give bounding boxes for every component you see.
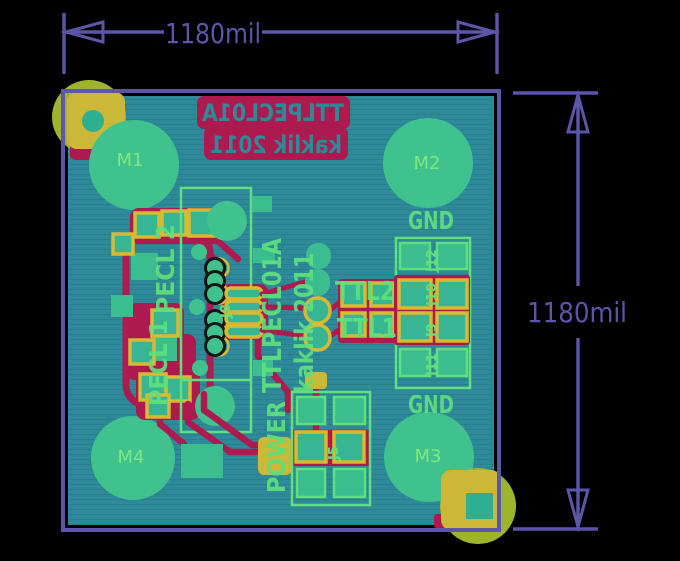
silkscreen-title-block: TTLPECL01A kaklik 2011 [197,96,350,160]
j-connector-block: J12 J10 J9 J11 [394,238,470,388]
silk-title-line1: TTLPECL01A [202,99,344,127]
power-label: POWER [262,401,291,493]
j9-label: J9 [425,323,440,338]
corner-pad-bottom-right [434,468,516,544]
gnd-top-label: GND [408,206,454,235]
right-dimension-value: 1180mil [527,296,627,329]
corner-drill-br [466,493,493,519]
ttl2-label: TTL2 [335,277,395,307]
part-title-vertical: TTLPECL01A [258,238,288,393]
author-year-vertical: kaklik 2011 [290,253,320,393]
j5-label: J5 [327,446,342,461]
gnd-bottom-label: GND [408,390,454,419]
j8-label: J8 [219,304,234,319]
corner-drill [82,110,104,132]
top-dimension: 1180mil [64,13,497,74]
m3-label: M3 [415,446,442,467]
top-dimension-value: 1180mil [165,17,261,50]
j12-label: J12 [425,249,440,273]
pcb-render: TTLPECL01A kaklik 2011 M1 M2 M3 M4 [0,0,680,561]
copper-pour-pad [181,444,223,478]
pecl2-label: PECL 2 [151,224,180,314]
m4-label: M4 [118,447,145,468]
silk-title-line2: kaklik 2011 [210,131,342,159]
j10-label: J10 [425,283,440,307]
pcb-viewer-canvas: TTLPECL01A kaklik 2011 M1 M2 M3 M4 [0,0,680,561]
m2-label: M2 [414,153,441,174]
dip-via-top [207,201,247,241]
board: TTLPECL01A kaklik 2011 M1 M2 M3 M4 [52,80,516,544]
m1-label: M1 [117,150,144,171]
pecl1-label: PECL 1 [144,320,173,406]
j11-label: J11 [425,353,440,377]
ttl1-label: TTL1 [337,314,397,344]
right-dimension: 1180mil [513,93,627,529]
